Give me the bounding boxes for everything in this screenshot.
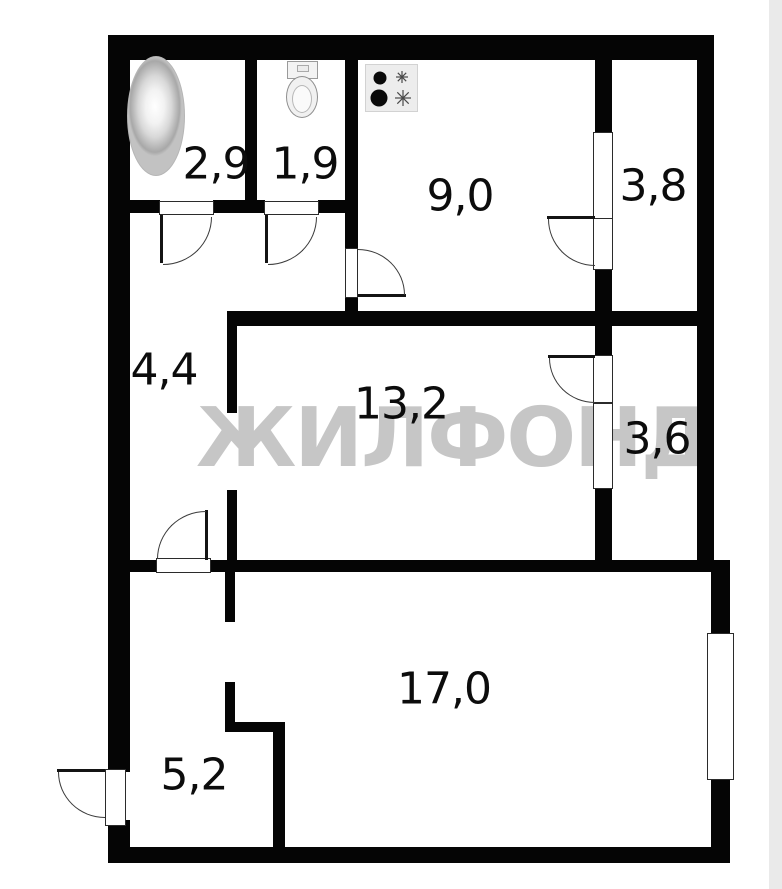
balcony-top-door-frame: [593, 218, 613, 270]
wall-window-column-c: [595, 487, 612, 562]
wall-floor-divider-a: [108, 560, 157, 572]
toilet-door-arc: [268, 217, 317, 265]
balcony-middle-door-frame: [593, 355, 613, 403]
wall-entry-stub-b: [225, 682, 235, 722]
wall-window-column-a: [595, 60, 612, 132]
wall-entry-stub-a: [225, 572, 235, 622]
room-area-balcony-top: 3,8: [620, 161, 687, 212]
wall-wet-bottom-2: [213, 200, 265, 213]
toilet-door-frame: [264, 201, 319, 215]
wall-top: [108, 35, 710, 60]
room-area-toilet: 1,9: [272, 139, 339, 190]
room-area-bathroom: 2,9: [183, 139, 250, 190]
room-area-kitchen: 9,0: [427, 171, 494, 222]
hallway-door-arc: [157, 511, 206, 559]
stove-icon: [365, 64, 418, 112]
wall-kitchen-left-a: [345, 60, 358, 250]
toilet-button-icon: [297, 65, 309, 72]
balcony-top-window: [593, 132, 613, 220]
wall-balcony-right: [697, 35, 714, 567]
room-area-entry: 5,2: [161, 750, 228, 801]
entrance-door-arc: [58, 772, 105, 818]
wall-mid-horizontal: [227, 311, 714, 326]
hallway-door-frame: [156, 558, 211, 573]
wall-wet-bottom-1: [108, 200, 160, 213]
wall-living-left-a: [227, 311, 237, 413]
balcony-top-door-arc: [548, 219, 595, 266]
room-area-main-room: 17,0: [397, 664, 491, 715]
room-area-living-room: 13,2: [354, 379, 448, 430]
wall-right-lower: [711, 778, 730, 847]
room-area-hallway: 4,4: [131, 345, 198, 396]
bathtub-icon: [127, 56, 185, 176]
kitchen-door-arc: [358, 249, 405, 295]
bathroom-door-arc: [163, 217, 212, 265]
wall-entry-nook-v: [273, 722, 285, 847]
floor-plan: ЖИЛФОНД 2,9 1,9 9,0 3,8 4,4 13,2 3,6 17,…: [0, 0, 782, 889]
main-room-window: [707, 633, 734, 780]
balcony-middle-window: [593, 403, 613, 489]
wall-left-upper: [108, 35, 130, 772]
toilet-bowl-inner-icon: [292, 85, 312, 113]
bathroom-door-frame: [159, 201, 214, 215]
wall-bottom: [108, 847, 730, 863]
wall-floor-divider-b: [210, 560, 730, 572]
room-area-balcony-middle: 3,6: [624, 414, 691, 465]
image-edge-strip: [769, 0, 782, 889]
kitchen-door-frame: [345, 248, 358, 298]
entrance-door-frame: [105, 769, 126, 826]
